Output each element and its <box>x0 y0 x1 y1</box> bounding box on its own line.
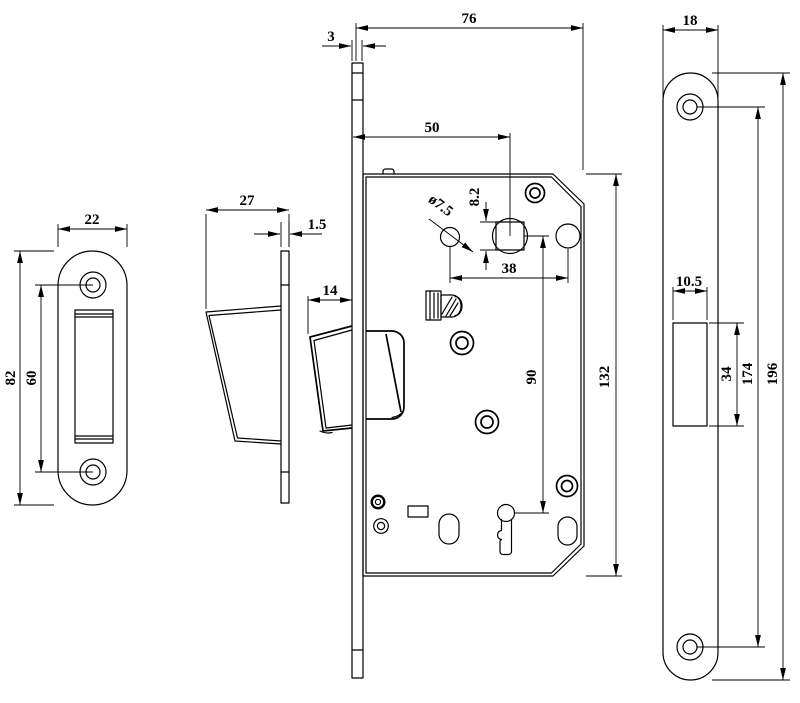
fixing-hole-left <box>441 228 460 247</box>
dim-label-82: 82 <box>3 371 19 386</box>
dim-latch-projection: 14 <box>308 283 352 334</box>
fixing-hole-right <box>556 224 580 248</box>
faceplate-strip <box>352 63 363 678</box>
dim-label-1_5: 1.5 <box>308 217 327 233</box>
lock-technical-drawing: 22 82 60 27 <box>0 0 800 703</box>
dim-label-10_5: 10.5 <box>676 274 702 290</box>
dim-cutout-width: 10.5 <box>673 274 707 320</box>
dim-label-76: 76 <box>462 11 478 27</box>
stopper-pin <box>426 291 462 320</box>
strike-latch-slot <box>75 310 113 443</box>
body-top-tab <box>383 169 394 174</box>
lock-body-view: 3 76 50 8.2 ø7.5 <box>308 11 622 678</box>
screw-post-center <box>476 411 499 434</box>
dim-follower-square: 8.2 <box>467 188 498 270</box>
slot-rect-small <box>408 506 428 517</box>
dim-faceplate-thickness: 3 <box>322 29 386 61</box>
dim-body-depth: 76 <box>356 11 583 170</box>
dim-label-50: 50 <box>425 120 440 136</box>
dust-box-view: 27 1.5 <box>206 193 326 503</box>
latch-bolt <box>310 326 352 433</box>
dim-hole-span: 38 <box>450 246 568 283</box>
strike-plate-outline <box>58 251 127 505</box>
dim-label-22: 22 <box>85 212 100 228</box>
screw-post-top-right <box>526 184 545 203</box>
dim-label-196: 196 <box>765 362 781 385</box>
dim-label-132: 132 <box>597 366 613 389</box>
faceplate-latch-cutout <box>673 323 707 426</box>
rivet-small-bottom <box>374 519 389 534</box>
dim-label-27: 27 <box>240 193 256 209</box>
leader-hole-diameter: ø7.5 <box>425 192 473 252</box>
dim-label-34: 34 <box>719 366 735 382</box>
dim-label-38: 38 <box>502 261 517 277</box>
dim-dustbox-depth: 27 <box>206 193 289 309</box>
dim-label-18: 18 <box>683 13 698 29</box>
dim-label-60: 60 <box>24 371 40 386</box>
dim-label-8_2: 8.2 <box>467 188 483 207</box>
keyhole <box>498 505 515 555</box>
dust-box-plate <box>281 251 289 503</box>
faceplate-front-view: 18 10.5 34 174 196 <box>663 13 790 680</box>
screw-post-bottom-right <box>557 476 578 497</box>
latch-bolt-inner <box>366 331 404 419</box>
dust-box-body <box>206 306 281 444</box>
dim-label-3: 3 <box>327 29 335 45</box>
oval-cutout-right <box>558 517 577 545</box>
strike-plate-view: 22 82 60 <box>3 212 127 505</box>
dim-label-174: 174 <box>740 362 756 385</box>
dim-body-height: 132 <box>586 174 622 576</box>
dim-dustbox-lip: 1.5 <box>254 217 326 247</box>
dim-strike-width: 22 <box>58 212 127 247</box>
dim-faceplate-width: 18 <box>663 13 718 100</box>
dim-label-90: 90 <box>524 370 540 385</box>
dim-label-14: 14 <box>323 283 339 299</box>
dim-cutout-height: 34 <box>709 323 744 426</box>
screw-post-mid-left <box>451 332 474 355</box>
lock-body-outline <box>363 169 584 576</box>
oval-cutout-left <box>439 514 459 544</box>
rivet-small-top <box>372 496 385 509</box>
faceplate-outline <box>663 73 718 680</box>
dim-label-dia7_5: ø7.5 <box>425 192 456 221</box>
